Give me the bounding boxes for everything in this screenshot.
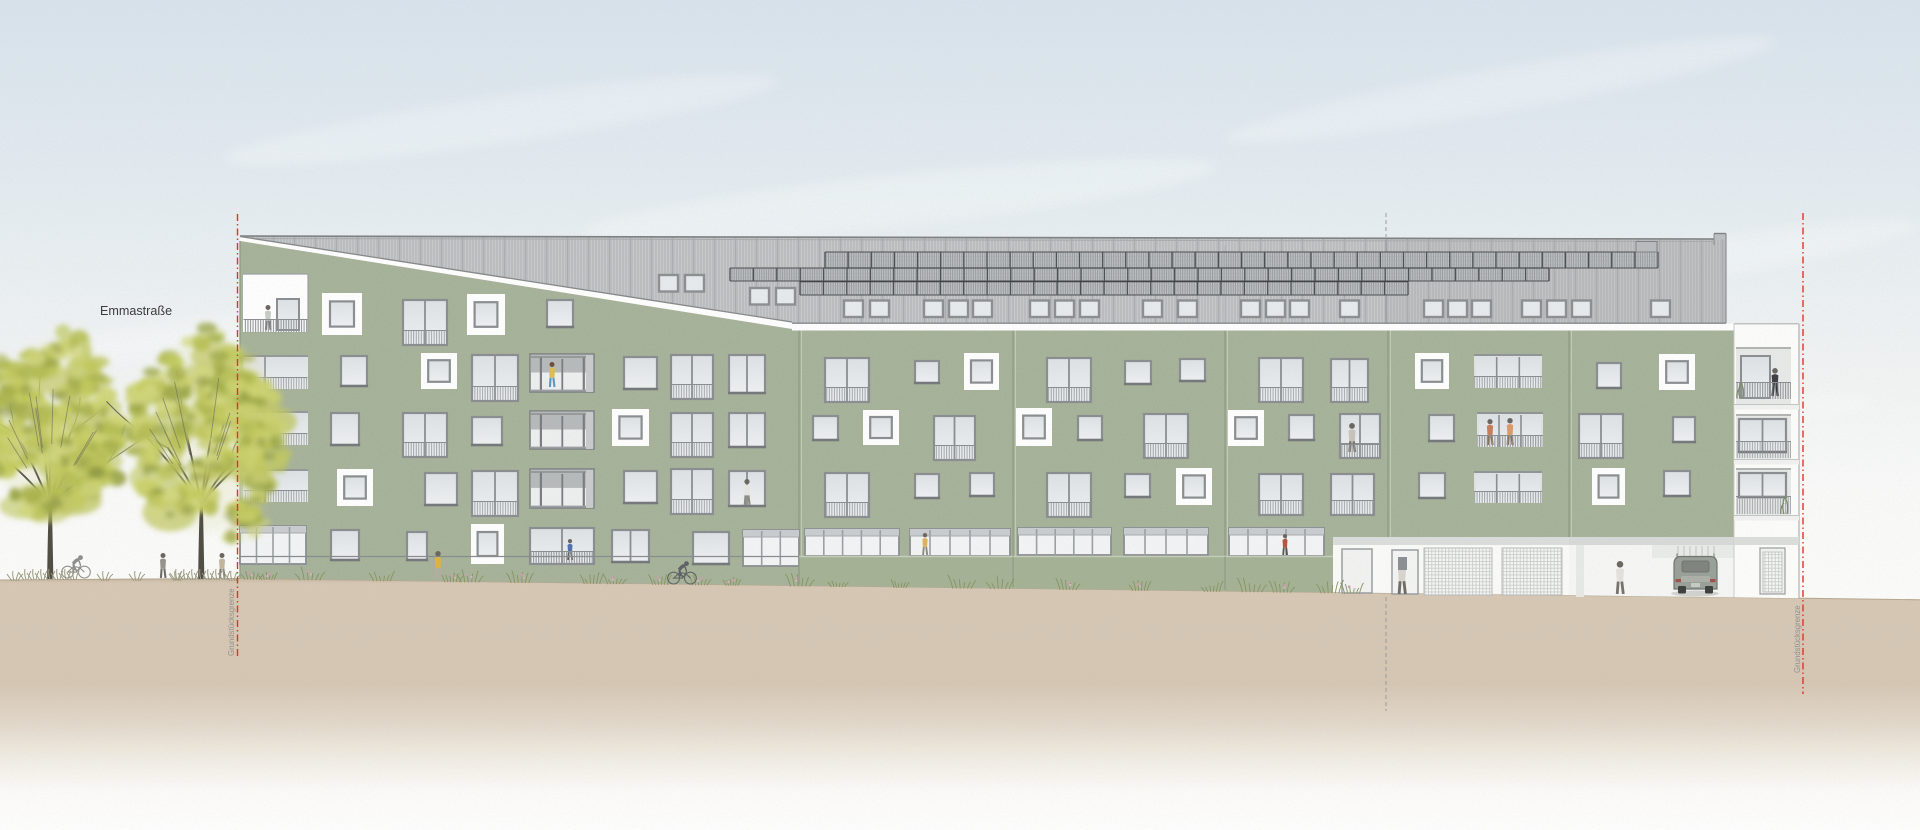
svg-text:Emmastraße: Emmastraße <box>100 304 172 318</box>
svg-text:Grundstücksgrenze: Grundstücksgrenze <box>227 588 236 656</box>
svg-text:Grundstücksgrenze: Grundstücksgrenze <box>1793 605 1802 673</box>
